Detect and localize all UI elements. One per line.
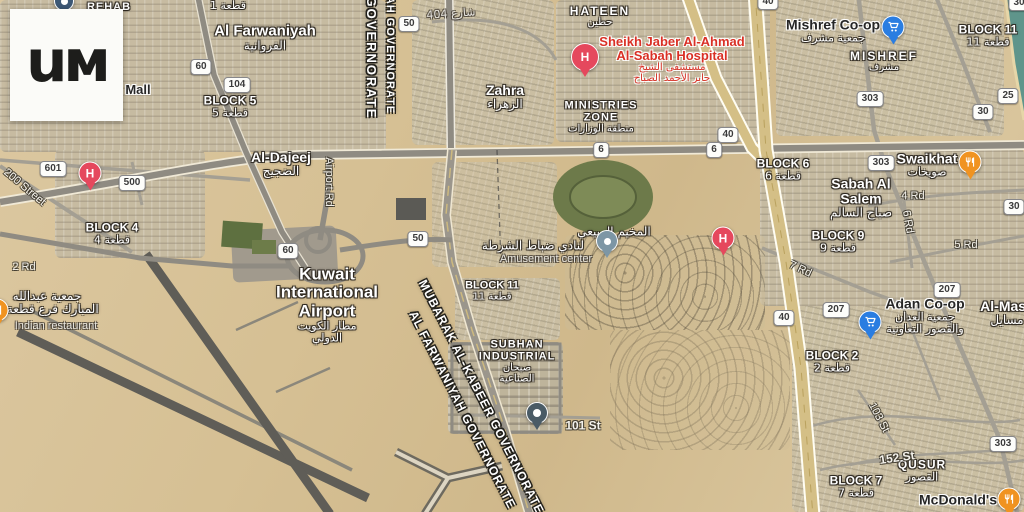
road-shield-40: 40 bbox=[717, 127, 738, 143]
satellite-map[interactable]: REHABقطعة 1Al FarwaniyahالفروانيةMallBLO… bbox=[0, 0, 1024, 512]
hospital-pin-icon: H bbox=[581, 50, 590, 64]
label-sabah-al-salem-text: صباح السالم bbox=[830, 207, 892, 220]
label-sheikh-jaber-hospital-text: جابر الأحمد الصباح bbox=[599, 74, 744, 85]
road-label-airport-rd-text: Airport Rd bbox=[322, 157, 334, 207]
road-label-101st-text: 101 St bbox=[565, 420, 600, 433]
road-label-airport-rd: Airport Rd bbox=[322, 157, 334, 207]
label-adan-coop[interactable]: Adan Co-opجمعية العدانوالقصور التعاونية bbox=[885, 297, 964, 336]
road-shield-40: 40 bbox=[773, 310, 794, 326]
label-al-masayel-text: مسايل bbox=[980, 314, 1024, 327]
road-label-2rd: 2 Rd bbox=[12, 262, 35, 274]
label-sabah-al-salem-text: Salem bbox=[830, 192, 892, 207]
road-shield-6: 6 bbox=[593, 142, 609, 158]
restaurant-pin-icon bbox=[1004, 494, 1015, 505]
label-block1-text: قطعة 1 bbox=[210, 0, 246, 12]
road-label-4rd-text: 4 Rd bbox=[901, 191, 924, 203]
label-mubarak-al-kabeer-governorate: MUBARAK AL-KABEER GOVERNORATE bbox=[416, 278, 546, 512]
label-swaikhat-text: Swaikhat bbox=[897, 152, 958, 167]
place-pin-icon bbox=[533, 409, 541, 417]
label-block2: BLOCK 2قطعة 2 bbox=[806, 350, 859, 375]
label-amusement-center-text: Amusement center bbox=[500, 254, 592, 266]
restaurant-pin-icon bbox=[965, 157, 976, 168]
label-zahra-text: Zahra bbox=[486, 83, 524, 98]
label-sabah-al-salem-text: Sabah Al bbox=[830, 176, 892, 191]
label-amusement-arabic-2: لنادي ضباط الشرطة bbox=[482, 240, 584, 253]
road-shield-50: 50 bbox=[407, 231, 428, 247]
road-label-5rd-text: 5 Rd bbox=[954, 240, 977, 252]
label-al-masayel: Al-Masaمسايل bbox=[980, 299, 1024, 327]
label-indian-restaurant[interactable]: Indian restaurant bbox=[15, 321, 98, 333]
restaurant-pin-mcdonalds[interactable] bbox=[998, 488, 1021, 511]
label-governorate-top-2-text: AH GOVERNORATE bbox=[383, 0, 395, 114]
label-ministries-zone-text: ZONE bbox=[565, 113, 638, 125]
label-al-masayel-text: Al-Masa bbox=[980, 299, 1024, 314]
road-shield-104: 104 bbox=[224, 77, 251, 93]
road-label-5rd: 5 Rd bbox=[954, 240, 977, 252]
liveuamap-logo[interactable]: uм bbox=[10, 9, 123, 121]
label-mishref: MISHREFمشرف bbox=[850, 50, 918, 74]
road-label-street-404: شارع 404 bbox=[426, 6, 476, 21]
label-sheikh-jaber-hospital[interactable]: Sheikh Jaber Al-AhmadAl-Sabah Hospitalمس… bbox=[599, 35, 744, 85]
label-mishref-coop-text: Mishref Co-op bbox=[786, 18, 880, 33]
road-shield-6: 6 bbox=[706, 142, 722, 158]
place-pin-amusement-center[interactable] bbox=[596, 230, 618, 252]
road-shield-303: 303 bbox=[857, 91, 884, 107]
label-al-dajeej-text: Al-Dajeej bbox=[251, 150, 311, 165]
road-label-street-404-text: شارع 404 bbox=[426, 6, 476, 21]
road-shield-601: 601 bbox=[40, 161, 67, 177]
label-block9-text: قطعة 9 bbox=[812, 243, 865, 255]
road-shield-40: 40 bbox=[757, 0, 778, 10]
label-mcdonalds[interactable]: McDonald's bbox=[919, 492, 997, 507]
road-label-7rd: 7 Rd bbox=[787, 260, 813, 281]
hospital-pin-sheikh-jaber[interactable]: H bbox=[571, 43, 599, 71]
label-al-farwaniyah-text: الفروانية bbox=[214, 40, 316, 53]
label-kuwait-airport-text: الدولي bbox=[276, 333, 378, 345]
label-block6-text: قطعة 6 bbox=[757, 171, 810, 183]
road-label-103st: 103 St bbox=[865, 401, 890, 435]
label-block2-text: قطعة 2 bbox=[806, 363, 859, 375]
road-label-101st: 101 St bbox=[565, 420, 600, 433]
label-mishref-text: مشرف bbox=[850, 63, 918, 74]
road-label-6rd: 6 Rd bbox=[899, 210, 915, 235]
label-abdullah-mubarak-arabic-text: جمعية عبدالله bbox=[0, 290, 99, 303]
label-al-farwaniyah: Al Farwaniyahالفروانية bbox=[214, 23, 316, 52]
label-kuwait-airport-text: Airport bbox=[276, 302, 378, 320]
label-sheikh-jaber-hospital-text: Al-Sabah Hospital bbox=[599, 49, 744, 63]
label-block5-text: قطعة 5 bbox=[204, 108, 257, 120]
label-subhan-industrial-text: الصناعية bbox=[479, 374, 556, 385]
label-swaikhat: Swaikhatصويخات bbox=[897, 152, 958, 179]
road-shield-303: 303 bbox=[868, 155, 895, 171]
label-adan-coop-text: والقصور التعاونية bbox=[885, 324, 964, 336]
label-block11-center: BLOCK 11قطعة 11 bbox=[465, 281, 519, 304]
road-shield-60: 60 bbox=[190, 59, 211, 75]
label-block4-text: قطعة 4 bbox=[86, 235, 139, 247]
label-block4: BLOCK 4قطعة 4 bbox=[86, 222, 139, 247]
label-block5: BLOCK 5قطعة 5 bbox=[204, 95, 257, 120]
label-block1: قطعة 1 bbox=[210, 0, 246, 12]
label-kuwait-airport[interactable]: KuwaitInternationalAirportمطار الكويتالد… bbox=[276, 266, 378, 345]
label-sheikh-jaber-hospital-text: Sheikh Jaber Al-Ahmad bbox=[599, 35, 744, 49]
road-shield-207: 207 bbox=[934, 282, 961, 298]
label-block9: BLOCK 9قطعة 9 bbox=[812, 230, 865, 255]
road-label-4rd: 4 Rd bbox=[901, 191, 924, 203]
road-shield-500: 500 bbox=[119, 175, 146, 191]
label-mubarak-al-kabeer-governorate-text: MUBARAK AL-KABEER GOVERNORATE bbox=[416, 278, 546, 512]
label-block11-center-text: قطعة 11 bbox=[465, 293, 519, 304]
shopping-pin-mishref-coop[interactable] bbox=[882, 16, 905, 39]
road-shield-25: 25 bbox=[997, 88, 1018, 104]
road-label-6rd-text: 6 Rd bbox=[899, 210, 915, 235]
label-mcdonalds-text: McDonald's bbox=[919, 492, 997, 507]
place-blue-pin-icon bbox=[61, 0, 68, 5]
label-block11-right: BLOCK 11قطعة 11 bbox=[959, 24, 1018, 49]
label-governorate-top-1-text: GOVERNORATE bbox=[364, 0, 378, 119]
label-zahra: Zahraالزهراء bbox=[486, 83, 524, 111]
hospital-pin-icon: H bbox=[719, 231, 728, 245]
label-subhan-industrial-text: صبحان bbox=[479, 363, 556, 374]
road-shield-30: 30 bbox=[1003, 199, 1024, 215]
label-amusement-arabic-2-text: لنادي ضباط الشرطة bbox=[482, 240, 584, 253]
label-zahra-text: الزهراء bbox=[486, 98, 524, 111]
restaurant-pin-icon bbox=[0, 305, 3, 316]
dot-pin-icon bbox=[604, 238, 611, 245]
label-block7: BLOCK 7قطعة 7 bbox=[830, 475, 883, 500]
road-shield-207: 207 bbox=[823, 302, 850, 318]
road-shield-60: 60 bbox=[277, 243, 298, 259]
label-abdullah-mubarak-arabic-text: المبارك فرع قطعة 2 bbox=[0, 303, 99, 316]
label-ministries-zone: MINISTRIESZONEمنطقة الوزارات bbox=[565, 101, 638, 136]
road-label-2rd-text: 2 Rd bbox=[12, 262, 35, 274]
restaurant-pin-swaikhat[interactable] bbox=[959, 151, 982, 174]
label-governorate-top-1: GOVERNORATE bbox=[364, 0, 378, 119]
label-al-farwaniyah-text: Al Farwaniyah bbox=[214, 23, 316, 39]
road-shield-30: 30 bbox=[1008, 0, 1024, 11]
road-label-7rd-text: 7 Rd bbox=[787, 260, 813, 281]
shopping-pin-adan-coop[interactable] bbox=[859, 311, 882, 334]
label-kuwait-airport-text: International bbox=[276, 284, 378, 302]
hospital-pin-west[interactable]: H bbox=[79, 162, 102, 185]
label-amusement-center[interactable]: Amusement center bbox=[500, 254, 592, 266]
label-block11-right-text: قطعة 11 bbox=[959, 37, 1018, 49]
road-shield-30: 30 bbox=[972, 104, 993, 120]
label-governorate-top-2: AH GOVERNORATE bbox=[383, 0, 395, 114]
cart-pin-icon bbox=[864, 316, 876, 329]
road-shield-50: 50 bbox=[398, 16, 419, 32]
hospital-pin-icon: H bbox=[86, 166, 95, 180]
label-mishref-coop[interactable]: Mishref Co-opجمعية مشرف bbox=[786, 18, 880, 45]
label-al-dajeej-text: الضجيج bbox=[251, 165, 311, 178]
hospital-pin-east[interactable]: H bbox=[712, 227, 735, 250]
label-hateen: HATEENحطين bbox=[570, 5, 630, 29]
label-swaikhat-text: صويخات bbox=[897, 167, 958, 179]
label-adan-coop-text: Adan Co-op bbox=[885, 297, 964, 312]
label-indian-restaurant-text: Indian restaurant bbox=[15, 321, 98, 333]
road-shield-303: 303 bbox=[990, 436, 1017, 452]
label-mishref-text: MISHREF bbox=[850, 50, 918, 63]
label-block6: BLOCK 6قطعة 6 bbox=[757, 158, 810, 183]
label-mall[interactable]: Mall bbox=[125, 83, 150, 97]
road-label-103st-text: 103 St bbox=[865, 401, 890, 435]
label-kuwait-airport-text: Kuwait bbox=[276, 266, 378, 284]
label-block7-text: قطعة 7 bbox=[830, 488, 883, 500]
place-pin-101st[interactable] bbox=[526, 402, 548, 424]
label-subhan-industrial: SUBHANINDUSTRIALصبحانالصناعية bbox=[479, 339, 556, 384]
label-al-dajeej: Al-Dajeejالضجيج bbox=[251, 150, 311, 178]
label-hateen-text: حطين bbox=[570, 18, 630, 29]
label-abdullah-mubarak-arabic: جمعية عبداللهالمبارك فرع قطعة 2 bbox=[0, 290, 99, 316]
label-subhan-industrial-text: INDUSTRIAL bbox=[479, 351, 556, 363]
liveuamap-logo-text: uм bbox=[26, 27, 107, 95]
cart-pin-icon bbox=[887, 21, 899, 34]
label-mishref-coop-text: جمعية مشرف bbox=[786, 33, 880, 45]
label-ministries-zone-text: منطقة الوزارات bbox=[565, 124, 638, 135]
map-labels-layer: REHABقطعة 1Al FarwaniyahالفروانيةMallBLO… bbox=[0, 0, 1024, 512]
label-mall-text: Mall bbox=[125, 83, 150, 97]
label-qusur-text: القصور bbox=[898, 472, 946, 484]
label-sabah-al-salem: Sabah AlSalemصباح السالم bbox=[830, 176, 892, 219]
label-hateen-text: HATEEN bbox=[570, 5, 630, 18]
